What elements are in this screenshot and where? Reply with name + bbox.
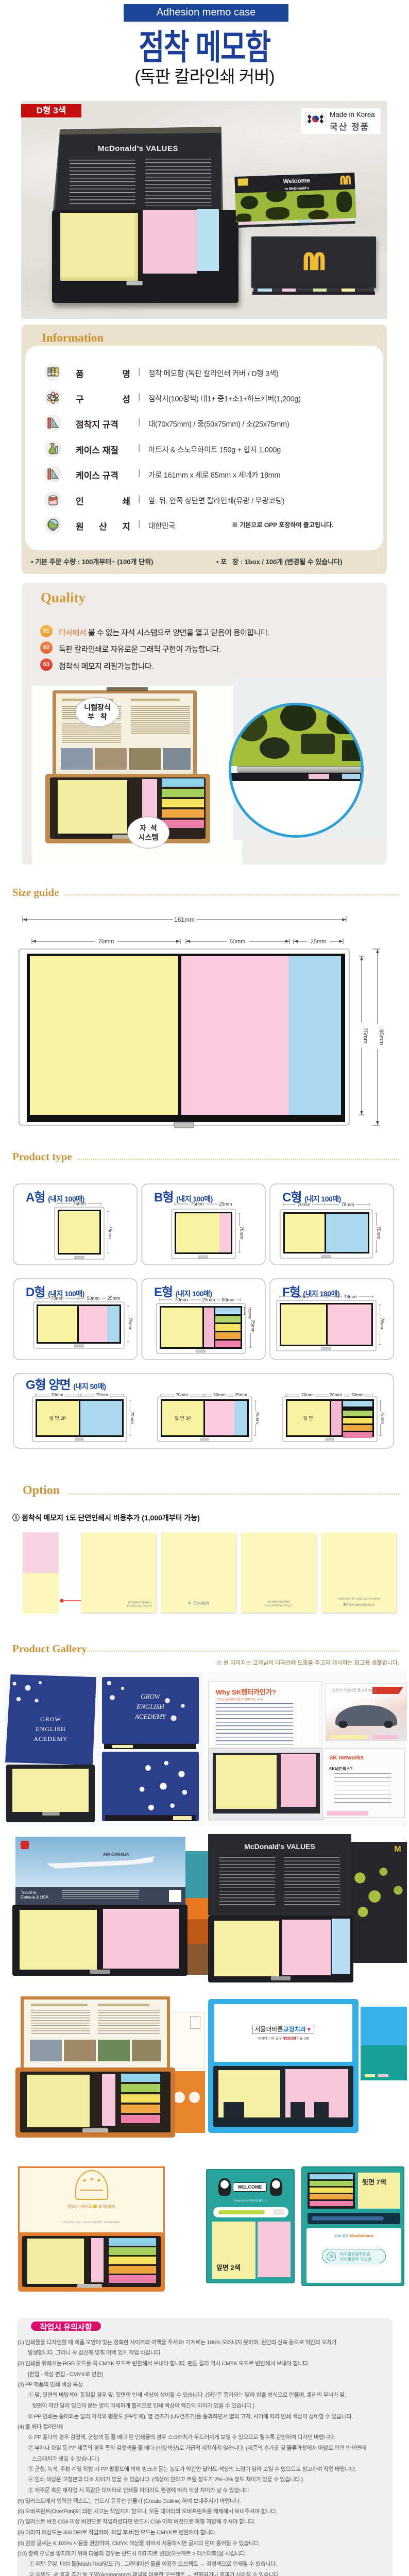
svg-text:75mm: 75mm: [96, 1392, 108, 1397]
svg-text:75mm: 75mm: [239, 1226, 244, 1239]
svg-text:75mm: 75mm: [341, 1202, 354, 1207]
svg-text:70mm: 70mm: [51, 1392, 63, 1397]
svg-text:25mm: 25mm: [235, 1392, 247, 1397]
svg-text:75mm: 75mm: [250, 1319, 255, 1332]
svg-text:85mm: 85mm: [378, 1029, 384, 1045]
svg-text:50mm: 50mm: [87, 1296, 99, 1301]
svg-text:70mm: 70mm: [176, 1392, 188, 1397]
svg-text:50mm: 50mm: [221, 1297, 234, 1302]
svg-text:75mm: 75mm: [130, 1412, 135, 1424]
svg-text:78mm: 78mm: [380, 1317, 385, 1330]
svg-text:뒷 면: 뒷 면: [303, 1415, 313, 1421]
svg-text:50mm: 50mm: [213, 1392, 226, 1397]
svg-text:앞 면 3P: 앞 면 3P: [175, 1415, 192, 1421]
svg-text:25mm: 25mm: [311, 939, 327, 945]
svg-text:75mm: 75mm: [380, 1412, 385, 1424]
svg-text:20mm: 20mm: [330, 1392, 342, 1397]
svg-text:70mm: 70mm: [98, 939, 114, 945]
svg-text:75mm: 75mm: [128, 1317, 133, 1330]
svg-text:75mm: 75mm: [255, 1412, 260, 1424]
svg-text:12mm: 12mm: [247, 1309, 250, 1319]
svg-text:앞 면 2P: 앞 면 2P: [49, 1415, 66, 1421]
svg-text:75mm: 75mm: [108, 1226, 113, 1239]
svg-text:50mm: 50mm: [351, 1392, 364, 1397]
svg-text:161mm: 161mm: [174, 916, 195, 923]
svg-text:75mm: 75mm: [376, 1226, 381, 1239]
svg-text:75mm: 75mm: [362, 1028, 368, 1044]
svg-text:50mm: 50mm: [230, 939, 246, 945]
svg-text:78mm: 78mm: [344, 1294, 356, 1299]
svg-text:25mm: 25mm: [219, 1201, 232, 1207]
svg-text:70mm: 70mm: [301, 1392, 314, 1397]
svg-text:25mm: 25mm: [107, 1296, 120, 1301]
